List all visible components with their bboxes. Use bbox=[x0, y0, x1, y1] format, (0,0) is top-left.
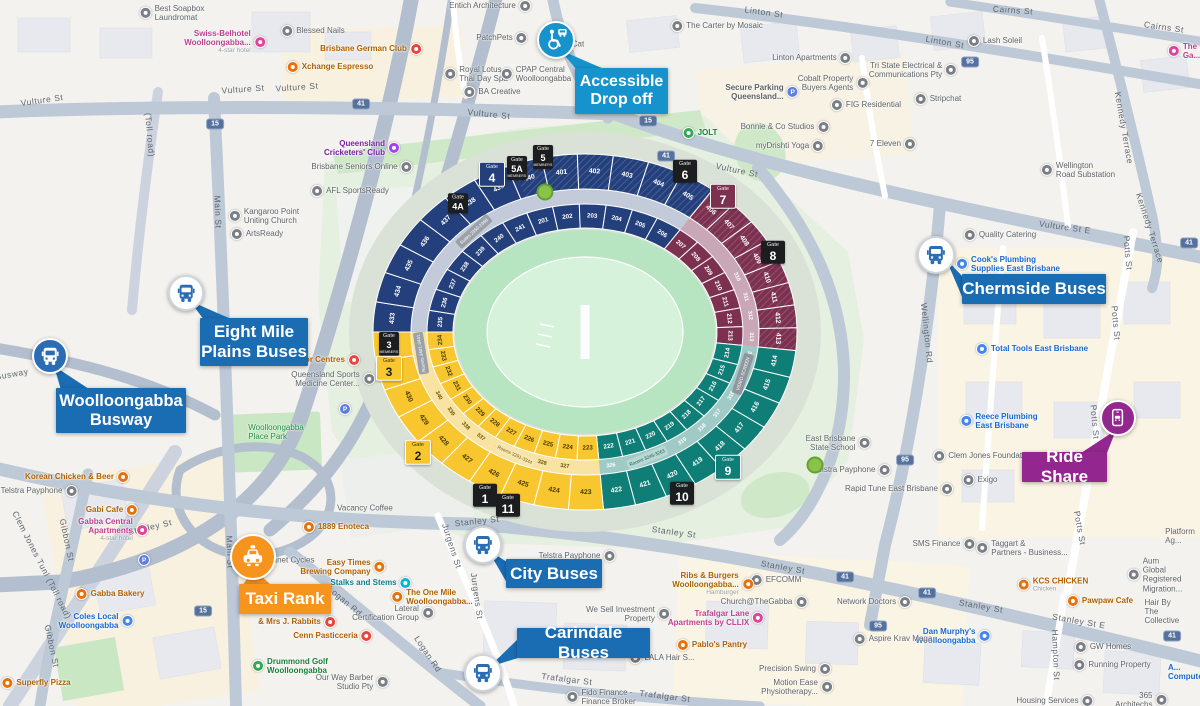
poi-label: A... Computer... bbox=[1168, 663, 1200, 681]
poi-marker[interactable]: Blessed Nails bbox=[281, 25, 344, 37]
poi-label: CPAP Central Woolloongabba bbox=[516, 65, 571, 83]
poi-dot-icon bbox=[904, 138, 916, 150]
poi-dot-icon bbox=[140, 7, 152, 19]
poi-dot-icon bbox=[854, 633, 866, 645]
poi-marker[interactable]: Fido Finance - Finance Broker bbox=[566, 688, 635, 706]
poi-label: The Ga... bbox=[1183, 42, 1200, 60]
poi-marker[interactable]: Precision Swing bbox=[759, 663, 831, 675]
stadium-section-label: 433 bbox=[389, 312, 397, 324]
poi-dot-icon bbox=[1073, 659, 1085, 671]
poi-marker[interactable]: Stripchat bbox=[915, 93, 962, 105]
poi-marker[interactable]: SMS Finance bbox=[912, 538, 975, 550]
carindale-buses-label[interactable]: Carindale Buses bbox=[517, 628, 650, 658]
poi-label: Aum Global Registered Migration... bbox=[1143, 557, 1183, 594]
poi-dot-icon bbox=[348, 354, 360, 366]
poi-dot-icon bbox=[311, 185, 323, 197]
poi-marker[interactable]: Gabba Central Apartments4-star hotel bbox=[78, 517, 148, 543]
poi-label: Taggart & Partners - Business... bbox=[991, 539, 1067, 557]
poi-dot-icon bbox=[819, 663, 831, 675]
poi-label: PatchPets bbox=[476, 33, 512, 42]
poi-dot-icon bbox=[126, 504, 138, 516]
poi-dot-icon bbox=[962, 474, 974, 486]
poi-marker[interactable]: Xchange Espresso bbox=[287, 61, 374, 73]
poi-label: myDrishti Yoga bbox=[756, 141, 809, 150]
poi-dot-icon bbox=[281, 25, 293, 37]
ride-share-label[interactable]: Ride Share bbox=[1022, 452, 1107, 482]
poi-dot-icon bbox=[945, 64, 957, 76]
poi-label: Hair By The Collective bbox=[1145, 598, 1182, 626]
poi-marker[interactable]: Running Property bbox=[1073, 659, 1150, 671]
eight-mile-plains-buses-icon[interactable] bbox=[168, 275, 204, 311]
poi-dot-icon bbox=[422, 607, 434, 619]
poi-marker[interactable]: Platform Ag... bbox=[1165, 527, 1195, 545]
poi-label: Stripchat bbox=[930, 94, 962, 103]
poi-dot-icon bbox=[976, 343, 988, 355]
poi-label: Swiss-Belhotel Woolloongabba...4-star ho… bbox=[184, 29, 251, 55]
poi-label: The Carter by Mosaic bbox=[686, 21, 762, 30]
poi-label: Entich Architecture bbox=[449, 1, 516, 10]
poi-dot-icon bbox=[76, 588, 88, 600]
poi-label: Tri State Electrical & Communications Pt… bbox=[869, 61, 942, 79]
poi-dot-icon bbox=[65, 485, 77, 497]
poi-label: FIG Residential bbox=[846, 100, 901, 109]
poi-marker[interactable]: Korean Chicken & Beer bbox=[25, 471, 129, 483]
poi-marker[interactable]: Wellington Road Substation bbox=[1041, 161, 1115, 179]
poi-dot-icon bbox=[401, 161, 413, 173]
poi-dot-icon bbox=[1018, 579, 1030, 591]
poi-label: Linton Apartments bbox=[772, 53, 836, 62]
poi-dot-icon bbox=[856, 77, 868, 89]
poi-marker[interactable]: Cook's Plumbing Supplies East Brisbane bbox=[956, 255, 1060, 273]
poi-marker[interactable]: Aum Global Registered Migration... bbox=[1128, 557, 1183, 594]
poi-label: Xchange Espresso bbox=[302, 62, 374, 71]
poi-dot-icon bbox=[121, 615, 133, 627]
poi-label: Precision Swing bbox=[759, 664, 816, 673]
poi-dot-icon bbox=[1082, 695, 1094, 706]
poi-marker[interactable]: Entich Architecture bbox=[449, 0, 531, 12]
poi-marker[interactable]: Ribs & Burgers Woolloongabba...Hamburger bbox=[672, 571, 754, 597]
poi-dot-icon bbox=[1156, 694, 1168, 706]
poi-marker[interactable]: Pablo's Pantry bbox=[677, 639, 747, 651]
stadium-section-label: 213 bbox=[726, 330, 733, 341]
poi-marker[interactable]: Tri State Electrical & Communications Pt… bbox=[869, 61, 957, 79]
stadium-section-label: 423 bbox=[580, 489, 592, 496]
poi-marker[interactable]: P bbox=[138, 554, 150, 566]
poi-label: Fido Finance - Finance Broker bbox=[581, 688, 635, 706]
poi-label: Running Property bbox=[1088, 660, 1150, 669]
map-canvas[interactable]: 4334344354364374384394404014024034044052… bbox=[0, 0, 1200, 706]
poi-dot-icon bbox=[410, 43, 422, 55]
poi-label: Coles Local Woolloongabba bbox=[59, 612, 119, 630]
poi-dot-icon: P bbox=[339, 403, 351, 415]
poi-marker[interactable]: PatchPets bbox=[476, 32, 527, 44]
poi-marker[interactable]: Coles Local Woolloongabba bbox=[59, 612, 134, 630]
poi-marker[interactable]: JOLT bbox=[683, 127, 718, 139]
poi-label: Cook's Plumbing Supplies East Brisbane bbox=[971, 255, 1060, 273]
poi-label: EFCOMM bbox=[766, 575, 802, 584]
poi-label: Reece Plumbing East Brisbane bbox=[975, 412, 1037, 430]
poi-label: Blessed Nails bbox=[296, 26, 344, 35]
poi-marker[interactable]: Cobalt Property Buyers Agents bbox=[798, 74, 869, 92]
accessible-drop-off-label[interactable]: Accessible Drop off bbox=[575, 68, 668, 114]
stadium-section-label: 312 bbox=[746, 311, 753, 321]
poi-dot-icon: P bbox=[138, 554, 150, 566]
poi-label: Rapid Tune East Brisbane bbox=[845, 484, 938, 493]
poi-label: Lash Soleil bbox=[983, 36, 1022, 45]
poi-label: Cobalt Property Buyers Agents bbox=[798, 74, 854, 92]
poi-marker[interactable]: KCS CHICKENChicken bbox=[1018, 577, 1089, 594]
poi-label: Aspire Krav Maga bbox=[869, 634, 933, 643]
poi-label: Platform Ag... bbox=[1165, 527, 1195, 545]
poi-marker[interactable]: P bbox=[339, 403, 351, 415]
poi-dot-icon bbox=[742, 578, 754, 590]
poi-marker[interactable]: Reece Plumbing East Brisbane bbox=[960, 412, 1037, 430]
poi-label: Woolloongabba Place Park bbox=[248, 423, 303, 441]
poi-dot-icon bbox=[254, 36, 266, 48]
poi-dot-icon bbox=[1067, 595, 1079, 607]
poi-marker[interactable]: Taggart & Partners - Business... bbox=[976, 539, 1067, 557]
poi-marker[interactable]: Quality Catering bbox=[964, 229, 1036, 241]
poi-marker[interactable]: A... Computer... bbox=[1168, 663, 1200, 681]
chermside-buses-icon[interactable] bbox=[917, 236, 955, 274]
poi-marker[interactable]: & Mrs J. Rabbits bbox=[258, 616, 336, 628]
poi-dot-icon bbox=[117, 471, 129, 483]
poi-marker[interactable]: 7 Eleven bbox=[870, 138, 916, 150]
poi-marker[interactable]: Gabi Cafe bbox=[86, 504, 138, 516]
poi-dot-icon bbox=[303, 521, 315, 533]
stadium-section-label: 327 bbox=[560, 463, 570, 470]
poi-dot-icon bbox=[831, 99, 843, 111]
poi-marker[interactable]: BA Creative bbox=[463, 86, 520, 98]
poi-dot-icon bbox=[1041, 164, 1053, 176]
poi-dot-icon bbox=[361, 630, 373, 642]
carindale-buses-icon[interactable] bbox=[464, 654, 502, 692]
poi-label: Brisbane German Club bbox=[320, 44, 407, 53]
poi-marker[interactable]: Trafalgar Lane Apartments by CLLIX bbox=[668, 609, 764, 627]
poi-label: Our Way Barber Studio Pty bbox=[316, 673, 374, 691]
poi-label: Kangaroo Point Uniting Church bbox=[244, 207, 299, 225]
poi-label: Pablo's Pantry bbox=[692, 640, 747, 649]
poi-marker[interactable]: oor Centres bbox=[300, 354, 360, 366]
poi-label: Wellington Road Substation bbox=[1056, 161, 1115, 179]
stadium-section-label: 234 bbox=[436, 334, 444, 345]
poi-label: SMS Finance bbox=[912, 539, 960, 548]
poi-dot-icon bbox=[817, 121, 829, 133]
poi-marker[interactable]: GW Homes bbox=[1075, 641, 1131, 653]
woolloongabba-busway-label[interactable]: Woolloongabba Busway bbox=[56, 388, 186, 433]
city-buses-icon[interactable] bbox=[464, 526, 502, 564]
poi-marker[interactable]: Royal Lotus Thai Day Spa bbox=[444, 65, 507, 83]
poi-dot-icon bbox=[363, 373, 375, 385]
accessible-drop-off-icon[interactable] bbox=[537, 21, 575, 59]
poi-marker[interactable]: Hair By The Collective bbox=[1145, 598, 1182, 626]
poi-dot-icon bbox=[840, 52, 852, 64]
woolloongabba-busway-icon[interactable] bbox=[32, 338, 68, 374]
poi-label: AFL SportsReady bbox=[326, 186, 389, 195]
poi-label: Gabba Central Apartments4-star hotel bbox=[78, 517, 133, 543]
stadium-section-label: 223 bbox=[582, 444, 593, 451]
poi-marker[interactable]: 365 Architechs bbox=[1103, 691, 1168, 706]
poi-marker[interactable]: Rapid Tune East Brisbane bbox=[845, 483, 953, 495]
poi-label: Gabba Bakery bbox=[91, 589, 145, 598]
poi-label: Total Tools East Brisbane bbox=[991, 344, 1088, 353]
poi-dot-icon bbox=[956, 258, 968, 270]
poi-label: Housing Services bbox=[1016, 696, 1078, 705]
poi-marker[interactable]: ArtsReady bbox=[231, 228, 283, 240]
poi-dot-icon bbox=[941, 483, 953, 495]
poi-dot-icon bbox=[287, 61, 299, 73]
poi-dot-icon bbox=[960, 415, 972, 427]
poi-dot-icon bbox=[812, 140, 824, 152]
poi-marker[interactable]: AFL SportsReady bbox=[311, 185, 389, 197]
poi-marker[interactable]: Brisbane Seniors Online bbox=[311, 161, 412, 173]
poi-marker[interactable]: Aspire Krav Maga bbox=[854, 633, 933, 645]
poi-dot-icon bbox=[1168, 45, 1180, 57]
poi-label: East Brisbane State School bbox=[806, 434, 856, 452]
poi-dot-icon bbox=[915, 93, 927, 105]
poi-dot-icon bbox=[795, 596, 807, 608]
poi-marker[interactable]: CPAP Central Woolloongabba bbox=[501, 65, 571, 83]
poi-marker[interactable]: Cenn Pasticceria bbox=[293, 630, 372, 642]
poi-label: ArtsReady bbox=[246, 229, 283, 238]
poi-dot-icon bbox=[978, 630, 990, 642]
poi-dot-icon bbox=[463, 86, 475, 98]
stadium-section-label: 212 bbox=[725, 313, 733, 325]
poi-dot-icon bbox=[968, 35, 980, 47]
poi-dot-icon bbox=[229, 210, 241, 222]
poi-marker[interactable]: Secure Parking Queensland...P bbox=[725, 83, 798, 101]
poi-label: Network Doctors bbox=[837, 597, 896, 606]
poi-marker[interactable]: Clem Jones Foundation bbox=[933, 450, 1033, 462]
poi-label: Best Soapbox Laundromat bbox=[155, 4, 205, 22]
poi-dot-icon bbox=[752, 612, 764, 624]
poi-dot-icon bbox=[444, 68, 456, 80]
poi-marker[interactable]: Lateral Certification Group bbox=[352, 604, 434, 622]
poi-dot-icon bbox=[324, 616, 336, 628]
poi-label: Telstra Payphone bbox=[1, 486, 63, 495]
poi-marker[interactable]: Network Doctors bbox=[837, 596, 911, 608]
poi-label: Church@TheGabba bbox=[721, 597, 793, 606]
poi-label: Stalks and Stems bbox=[330, 578, 396, 587]
poi-dot-icon bbox=[376, 676, 388, 688]
poi-label: Gabi Cafe bbox=[86, 505, 123, 514]
poi-marker[interactable]: Total Tools East Brisbane bbox=[976, 343, 1088, 355]
stadium-section-label: 313 bbox=[748, 332, 754, 341]
chermside-buses-label[interactable]: Chermside Buses bbox=[962, 274, 1106, 304]
poi-dot-icon bbox=[878, 464, 890, 476]
poi-label: Queensland Cricketers' Club bbox=[324, 139, 385, 157]
poi-marker[interactable]: The Ga... bbox=[1168, 42, 1200, 60]
poi-label: Bonnie & Co Studios bbox=[741, 122, 815, 131]
poi-label: GW Homes bbox=[1090, 642, 1131, 651]
poi-dot-icon bbox=[933, 450, 945, 462]
poi-label: Motion Ease Physiotherapy... bbox=[761, 678, 818, 696]
poi-dot-icon bbox=[566, 691, 578, 703]
poi-marker[interactable]: Church@TheGabba bbox=[721, 596, 808, 608]
stadium-section-label: 235 bbox=[437, 316, 445, 327]
poi-label: Quality Catering bbox=[979, 230, 1036, 239]
poi-dot-icon bbox=[252, 660, 264, 672]
poi-dot-icon bbox=[683, 127, 695, 139]
poi-marker[interactable]: Swiss-Belhotel Woolloongabba...4-star ho… bbox=[184, 29, 266, 55]
ride-share-icon[interactable] bbox=[1100, 400, 1136, 436]
poi-marker[interactable]: The Carter by Mosaic bbox=[671, 20, 762, 32]
poi-marker[interactable]: Telstra Payphone bbox=[814, 464, 891, 476]
poi-label: Exigo bbox=[977, 475, 997, 484]
poi-marker[interactable]: Telstra Payphone bbox=[1, 485, 78, 497]
poi-marker[interactable]: Bonnie & Co Studios bbox=[741, 121, 830, 133]
poi-marker[interactable]: Motion Ease Physiotherapy... bbox=[761, 678, 833, 696]
poi-label: We Sell Investment Property bbox=[586, 605, 655, 623]
poi-marker[interactable]: Kangaroo Point Uniting Church bbox=[229, 207, 299, 225]
poi-marker[interactable]: Brisbane German Club bbox=[320, 43, 422, 55]
poi-dot-icon bbox=[603, 550, 615, 562]
poi-dot-icon bbox=[501, 68, 513, 80]
poi-marker[interactable]: Gabba Bakery bbox=[76, 588, 145, 600]
poi-dot-icon bbox=[136, 524, 148, 536]
poi-label: Korean Chicken & Beer bbox=[25, 472, 114, 481]
poi-dot-icon bbox=[1, 677, 13, 689]
stadium-section-label: 202 bbox=[562, 213, 574, 221]
poi-label: Secure Parking Queensland... bbox=[725, 83, 783, 101]
poi-label: BA Creative bbox=[478, 87, 520, 96]
poi-marker[interactable]: Pawpaw Cafe bbox=[1067, 595, 1133, 607]
city-buses-label[interactable]: City Buses bbox=[506, 559, 602, 588]
poi-marker[interactable]: We Sell Investment Property bbox=[586, 605, 670, 623]
poi-dot-icon bbox=[519, 0, 531, 12]
poi-label: JOLT bbox=[698, 128, 718, 137]
poi-label: Lateral Certification Group bbox=[352, 604, 419, 622]
poi-label: 7 Eleven bbox=[870, 139, 901, 148]
poi-label: KCS CHICKENChicken bbox=[1033, 577, 1089, 594]
poi-marker[interactable]: Woolloongabba Place Park bbox=[248, 423, 303, 441]
poi-marker[interactable]: Our Way Barber Studio Pty bbox=[316, 673, 389, 691]
poi-label: LALA Hair S... bbox=[644, 653, 694, 662]
stadium-section-label: 432 bbox=[389, 339, 397, 351]
poi-dot-icon bbox=[858, 437, 870, 449]
poi-dot-icon bbox=[899, 596, 911, 608]
taxi-rank-icon[interactable] bbox=[230, 534, 276, 580]
poi-dot-icon bbox=[374, 561, 386, 573]
stadium-section-label: 203 bbox=[587, 212, 598, 220]
poi-dot-icon bbox=[821, 681, 833, 693]
taxi-rank-label[interactable]: Taxi Rank bbox=[239, 584, 331, 614]
poi-marker[interactable]: Best Soapbox Laundromat bbox=[140, 4, 205, 22]
poi-label: 365 Architechs bbox=[1103, 691, 1153, 706]
poi-dot-icon bbox=[516, 32, 528, 44]
poi-label: Superfly Pizza bbox=[16, 678, 70, 687]
poi-marker[interactable]: FIG Residential bbox=[831, 99, 901, 111]
poi-label: Ribs & Burgers Woolloongabba...Hamburger bbox=[672, 571, 739, 597]
poi-dot-icon bbox=[231, 228, 243, 240]
poi-label: Telstra Payphone bbox=[814, 465, 876, 474]
poi-dot-icon bbox=[964, 538, 976, 550]
poi-marker[interactable]: Queensland Cricketers' Club bbox=[324, 139, 400, 157]
poi-label: Clem Jones Foundation bbox=[948, 451, 1033, 460]
poi-dot-icon bbox=[1128, 569, 1140, 581]
poi-dot-icon bbox=[964, 229, 976, 241]
poi-marker[interactable]: Exigo bbox=[962, 474, 997, 486]
poi-marker[interactable]: Housing Services bbox=[1016, 695, 1093, 706]
poi-dot-icon bbox=[671, 20, 683, 32]
poi-marker[interactable]: EFCOMM bbox=[751, 574, 802, 586]
poi-dot-icon bbox=[677, 639, 689, 651]
poi-dot-icon bbox=[658, 608, 670, 620]
eight-mile-plains-buses-label[interactable]: Eight Mile Plains Buses bbox=[200, 318, 308, 366]
poi-dot-icon bbox=[976, 542, 988, 554]
poi-marker[interactable]: Lash Soleil bbox=[968, 35, 1022, 47]
poi-label: Trafalgar Lane Apartments by CLLIX bbox=[668, 609, 749, 627]
poi-label: Cenn Pasticceria bbox=[293, 631, 357, 640]
poi-label: Brisbane Seniors Online bbox=[311, 162, 397, 171]
poi-marker[interactable]: Superfly Pizza bbox=[1, 677, 70, 689]
poi-marker[interactable]: 1889 Enoteca bbox=[303, 521, 369, 533]
poi-label: Queensland Sports Medicine Center... bbox=[291, 370, 360, 388]
poi-dot-icon bbox=[388, 142, 400, 154]
stadium-map: 4334344354364374384394404014024034044052… bbox=[349, 132, 821, 532]
poi-label: Vacancy Coffee bbox=[337, 503, 393, 512]
poi-label: 1889 Enoteca bbox=[318, 522, 369, 531]
poi-label: & Mrs J. Rabbits bbox=[258, 617, 321, 626]
poi-dot-icon bbox=[391, 591, 403, 603]
poi-label: Pawpaw Cafe bbox=[1082, 596, 1133, 605]
poi-dot-icon bbox=[1075, 641, 1087, 653]
poi-marker[interactable]: myDrishti Yoga bbox=[756, 140, 824, 152]
stadium-section-label: 224 bbox=[562, 443, 574, 451]
poi-marker[interactable]: Linton Apartments bbox=[772, 52, 851, 64]
poi-marker[interactable]: Vacancy Coffee bbox=[337, 503, 393, 512]
poi-marker[interactable]: East Brisbane State School bbox=[806, 434, 871, 452]
poi-marker[interactable]: Queensland Sports Medicine Center... bbox=[291, 370, 375, 388]
